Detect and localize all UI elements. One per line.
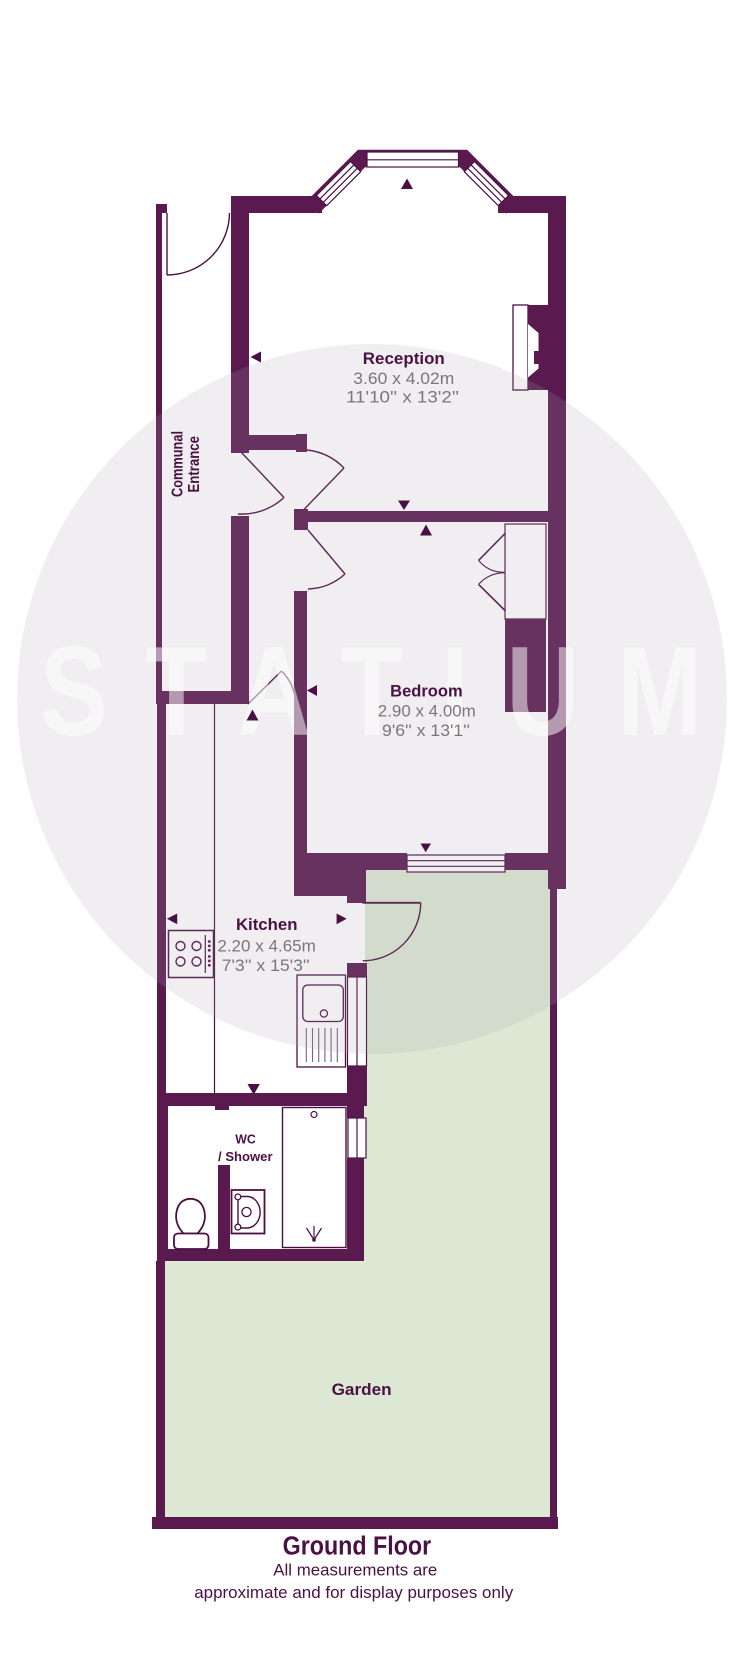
svg-text:Ground Floor: Ground Floor xyxy=(283,1533,432,1561)
svg-text:Bedroom: Bedroom xyxy=(390,682,463,701)
svg-text:/ Shower: / Shower xyxy=(218,1150,273,1164)
svg-text:3.60 x 4.02m: 3.60 x 4.02m xyxy=(353,369,454,388)
svg-text:Communal: Communal xyxy=(170,431,187,497)
svg-text:11'10'' x 13'2'': 11'10'' x 13'2'' xyxy=(346,387,459,406)
svg-text:Garden: Garden xyxy=(332,1380,392,1399)
svg-text:2.20 x 4.65m: 2.20 x 4.65m xyxy=(217,937,316,956)
svg-text:7'3'' x 15'3'': 7'3'' x 15'3'' xyxy=(222,956,310,975)
svg-text:Entrance: Entrance xyxy=(186,436,203,493)
svg-text:approximate and for display pu: approximate and for display purposes onl… xyxy=(194,1583,513,1602)
svg-text:2.90 x 4.00m: 2.90 x 4.00m xyxy=(378,702,476,721)
svg-text:All measurements are: All measurements are xyxy=(273,1561,437,1580)
svg-text:Reception: Reception xyxy=(363,349,445,368)
svg-text:Kitchen: Kitchen xyxy=(236,915,298,934)
svg-text:9'6'' x 13'1'': 9'6'' x 13'1'' xyxy=(382,721,470,740)
svg-text:WC: WC xyxy=(235,1133,256,1147)
